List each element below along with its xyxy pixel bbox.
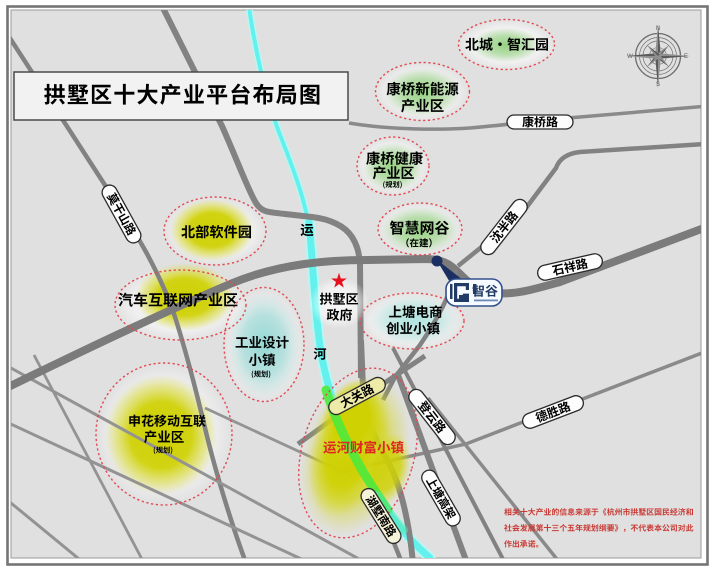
svg-text:N: N — [656, 26, 660, 32]
svg-text:W: W — [627, 54, 633, 60]
svg-text:E: E — [684, 54, 688, 60]
svg-text:S: S — [656, 82, 660, 88]
